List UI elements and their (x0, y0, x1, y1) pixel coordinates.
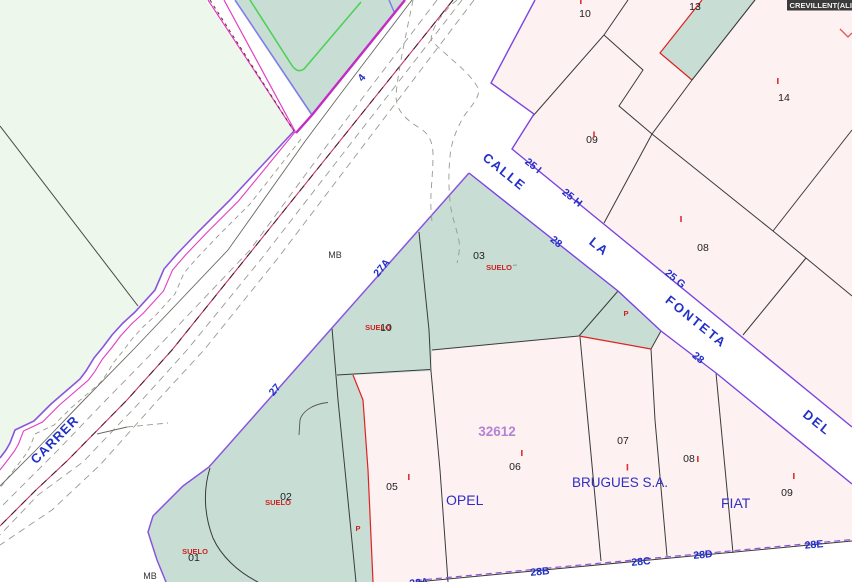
svg-text:SUELO: SUELO (486, 263, 512, 272)
svg-text:05: 05 (386, 481, 398, 493)
svg-text:CREVILLENT(ALI: CREVILLENT(ALI (790, 1, 852, 10)
svg-text:03: 03 (473, 250, 485, 262)
svg-text:28D: 28D (693, 548, 714, 562)
svg-text:09: 09 (781, 487, 793, 499)
svg-text:08: 08 (683, 453, 695, 465)
svg-text:P: P (623, 309, 628, 318)
svg-text:09: 09 (586, 134, 598, 146)
svg-text:13: 13 (689, 1, 701, 13)
svg-text:BRUGUES S.A.: BRUGUES S.A. (572, 475, 668, 490)
svg-text:SUELO: SUELO (182, 547, 208, 556)
svg-text:OPEL: OPEL (446, 492, 484, 508)
svg-text:SUELO: SUELO (365, 323, 391, 332)
svg-text:14: 14 (778, 92, 790, 104)
svg-text:SUELO: SUELO (265, 498, 291, 507)
svg-text:28C: 28C (631, 555, 652, 569)
svg-text:32612: 32612 (478, 424, 516, 439)
svg-text:28E: 28E (804, 538, 824, 552)
svg-text:MB: MB (328, 250, 342, 260)
svg-text:07: 07 (617, 435, 629, 447)
svg-text:06: 06 (509, 461, 521, 473)
svg-text:FIAT: FIAT (721, 495, 751, 511)
svg-text:28B: 28B (530, 565, 551, 579)
svg-text:28A: 28A (409, 576, 430, 582)
svg-text:08: 08 (697, 242, 709, 254)
svg-text:10: 10 (579, 8, 591, 20)
svg-text:P: P (355, 524, 360, 533)
svg-text:MB: MB (143, 571, 157, 581)
